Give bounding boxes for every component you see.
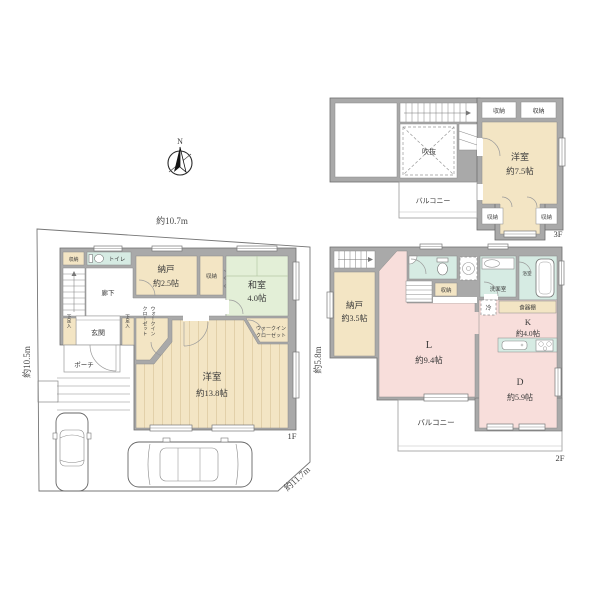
floor2-corridor <box>433 297 477 303</box>
kitchen-counter <box>498 338 557 352</box>
floor2-kitchen-dining: 冷 食器棚 K 約4.0帖 D 約5.9帖 <box>479 300 557 428</box>
floor2-living-label: L <box>426 340 432 351</box>
floor1-toilet-label: トイレ <box>109 257 126 263</box>
floor2-bathroom: 浴室 <box>519 256 557 300</box>
kitchen-sink-icon <box>502 341 527 350</box>
floor1-stairs <box>63 268 85 316</box>
floor2-balcony-label: バルコニー <box>417 418 454 427</box>
floor3-yoshitsu-size: 約7.5帖 <box>506 166 534 176</box>
floor2-label: 2F <box>556 453 565 463</box>
floor2-living-size: 約9.4帖 <box>415 355 443 365</box>
floor1-porch: ポーチ <box>64 345 120 372</box>
floor3-balcony: バルコニー <box>399 182 477 218</box>
floor1-nando-size: 約2.5帖 <box>153 278 179 288</box>
floor1-plan: 約10.7m 約10.5m 約5.8m 約11.7m 収納 トイレ 廊下 <box>21 215 323 493</box>
floor2-nando-label: 納戸 <box>346 300 363 310</box>
floor1-nando-label: 納戸 <box>157 264 174 274</box>
floor3-label: 3F <box>554 229 563 239</box>
floor2-dining-label: D <box>517 378 524 388</box>
floor3-room-topleft <box>335 103 397 177</box>
lot-dim-left: 約10.5m <box>21 346 32 378</box>
floor2-stairs-up <box>406 281 432 302</box>
floor1-shoe-right-label: 下足入 <box>125 314 131 328</box>
car-vertical <box>53 413 91 491</box>
vanity-sink-icon <box>482 258 514 269</box>
lot-dim-top: 約10.7m <box>156 215 188 226</box>
floor3-plan: 吹抜 収納 収納 洋室 約7.5帖 収納 収納 バルコニー <box>330 98 565 240</box>
north-compass-icon: N <box>168 137 192 175</box>
floor1-hallway-label: 廊下 <box>102 288 116 297</box>
approach-steps <box>57 378 130 410</box>
floor3-yoshitsu-label: 洋室 <box>511 151 529 162</box>
lot-dim-right: 約5.8m <box>312 346 323 373</box>
floor1-genkan-label: 玄関 <box>91 328 105 337</box>
washing-machine-icon <box>460 257 477 280</box>
floor2-washroom-label: 洗面室 <box>490 285 507 293</box>
refrigerator-icon: 冷 <box>481 300 496 315</box>
floor3-storage-d-label: 収納 <box>541 213 553 221</box>
floor2-storage-label: 収納 <box>440 286 452 294</box>
floor2-dining-size: 約5.9帖 <box>507 392 533 402</box>
floor2-nando-size: 約3.5帖 <box>342 313 368 323</box>
floor1-porch-label: ポーチ <box>74 361 94 369</box>
floor3-void: 吹抜 <box>400 124 457 178</box>
floor3-storage-a-label: 収納 <box>493 107 505 115</box>
floor1-washitsu-size: 4.0帖 <box>247 293 267 303</box>
floor1-storage-mid-label: 収納 <box>206 272 218 280</box>
floor2-washroom: 洗面室 <box>480 256 516 300</box>
floor1-wic-left-line2: クローゼット <box>142 306 148 336</box>
floor1-nando-room <box>136 256 197 295</box>
floor1-wic-left-line1: ウォークイン <box>150 305 156 336</box>
floorplan-svg: N 約10.7m 約10.5m 約5.8m 約11.7m 収納 トイレ <box>0 0 600 600</box>
floor1-storage-tl-label: 収納 <box>68 256 78 263</box>
floor1-toilet-room: トイレ <box>87 252 131 265</box>
stove-icon <box>536 340 553 351</box>
toilet-icon <box>437 258 448 275</box>
compass-north-label: N <box>177 137 183 146</box>
floor2-kitchen-label: K <box>525 317 532 327</box>
floor3-void-label: 吹抜 <box>422 147 436 156</box>
floor2-cupboard-label: 食器棚 <box>519 304 536 312</box>
floor1-genkan: 玄関 <box>76 316 120 345</box>
floor2-toilet-room <box>409 256 457 279</box>
floor1-wic-right-line2: クローゼット <box>256 332 286 339</box>
lot-dim-diagonal: 約11.7m <box>281 464 312 493</box>
toilet-icon <box>89 255 104 263</box>
floor2-stairs <box>334 251 375 268</box>
planter <box>38 381 58 402</box>
floorplan-canvas: N 約10.7m 約10.5m 約5.8m 約11.7m 収納 トイレ <box>0 0 600 600</box>
floor2-fridge-label: 冷 <box>485 304 491 312</box>
floor1-yoshitsu-label: 洋室 <box>202 371 221 383</box>
floor3-storage-b-label: 収納 <box>532 107 544 115</box>
floor1-yoshitsu-size: 約13.8帖 <box>196 388 228 398</box>
floor3-storage-c-label: 収納 <box>487 213 499 221</box>
floor1-washitsu-room: 和室 4.0帖 <box>223 256 288 316</box>
bathtub-icon <box>536 259 554 297</box>
floor2-kitchen-size: 約4.0帖 <box>516 328 541 338</box>
car-horizontal <box>128 438 252 487</box>
floor1-shoe-left-label: 下足入 <box>66 314 72 328</box>
floor1-washitsu-label: 和室 <box>248 279 266 290</box>
floor1-label: 1F <box>288 431 297 441</box>
floor2-plan: バルコニー 納戸 約3.5帖 L 約9.4帖 <box>327 244 565 463</box>
floor3-balcony-label: バルコニー <box>416 197 451 205</box>
